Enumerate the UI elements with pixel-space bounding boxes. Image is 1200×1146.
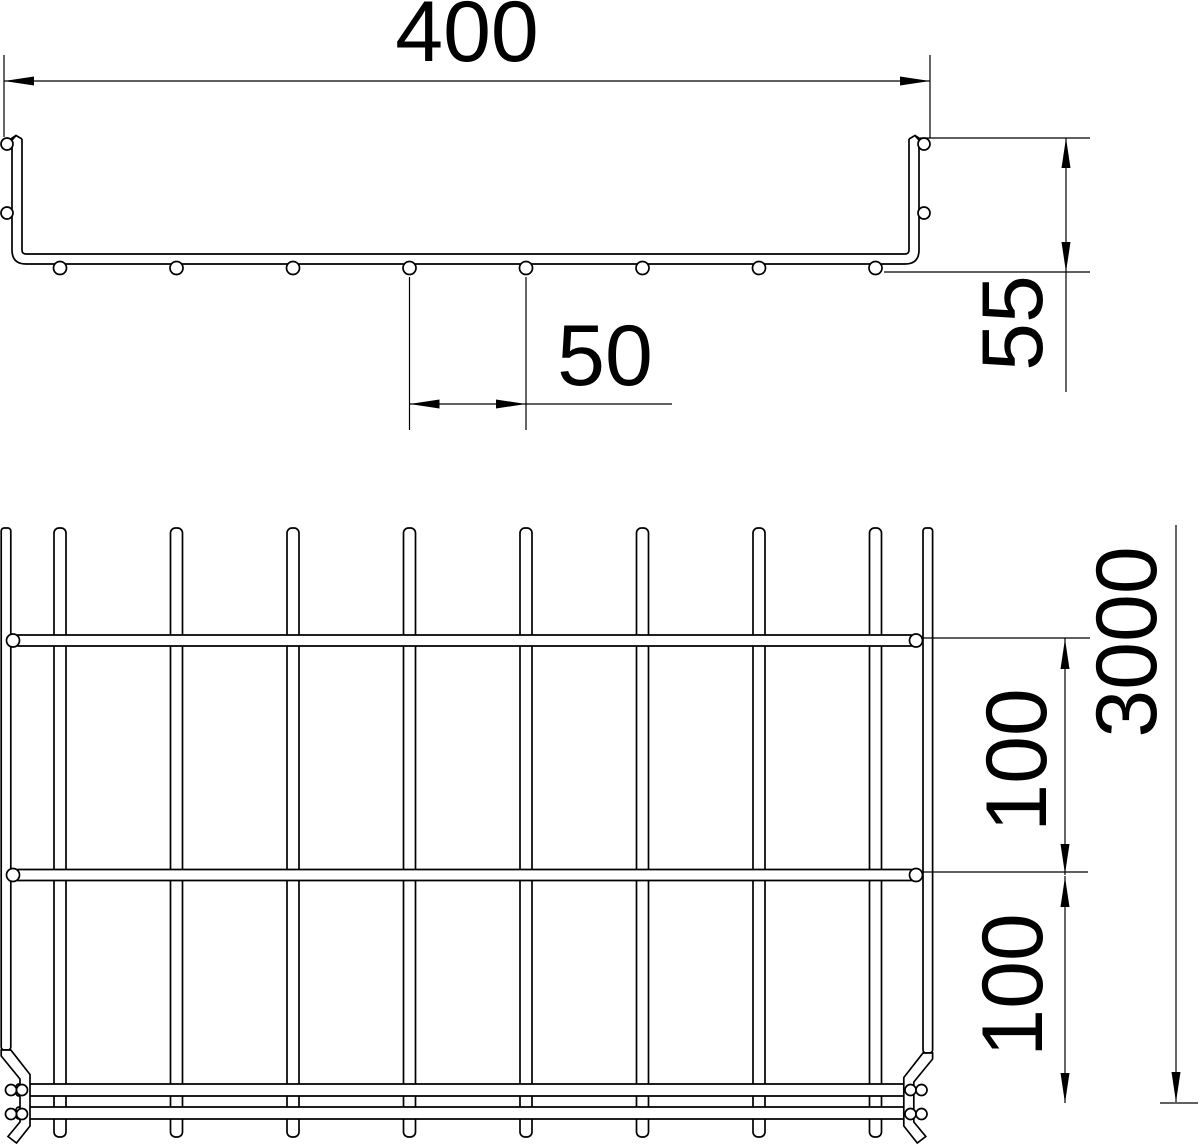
arrowhead-down (1172, 1072, 1181, 1102)
bottom-wire-circle (520, 262, 533, 275)
side-wire-circle (1, 138, 13, 150)
dim-length-3000: 3000 (1079, 525, 1198, 1103)
end-hook-right (904, 1053, 933, 1143)
arrowhead-up (1061, 639, 1070, 669)
plan-view: 100 100 3000 (1, 525, 1198, 1143)
mesh-longitudinal-wires (54, 528, 882, 1137)
dim-label-pitch-upper: 100 (969, 688, 1065, 832)
dim-label-height: 55 (965, 275, 1061, 371)
technical-drawing-canvas: 400 55 50 (0, 0, 1200, 1146)
dim-pitch-100-lower: 100 (965, 876, 1070, 1103)
end-rung-weld-circle (916, 1109, 927, 1120)
dim-height-55: 55 (884, 138, 1090, 392)
bottom-wire-circle (54, 262, 67, 275)
rung-end-circle (7, 869, 20, 882)
rung-end-a (16, 1084, 908, 1096)
edge-wire-right (923, 528, 933, 1053)
bottom-wire-circle (170, 262, 183, 275)
dim-spacing-50: 50 (410, 277, 673, 430)
bottom-wire-circle (636, 262, 649, 275)
longitudinal-wire (287, 528, 299, 1137)
arrowhead-down (1061, 844, 1070, 874)
longitudinal-wire (870, 528, 882, 1137)
longitudinal-wire (520, 528, 532, 1137)
dim-label-width: 400 (395, 0, 539, 80)
end-rung-weld-circle (916, 1085, 927, 1096)
longitudinal-wire (404, 528, 416, 1137)
longitudinal-wire (171, 528, 183, 1137)
rung-end-circle (910, 869, 923, 882)
end-rung-weld-circle (6, 1085, 17, 1096)
rung-2 (13, 870, 916, 881)
end-hook-left (1, 1050, 30, 1143)
side-wire-circle (1, 207, 13, 219)
longitudinal-wire (54, 528, 66, 1137)
end-rung-weld-circle (17, 1109, 28, 1120)
side-wire-circle (918, 138, 930, 150)
longitudinal-wire (753, 528, 765, 1137)
arrowhead-right (496, 400, 526, 409)
end-rung-weld-circle (905, 1109, 916, 1120)
profile-outer-contour (12, 140, 919, 264)
edge-wire-left (1, 528, 11, 1050)
longitudinal-wire (637, 528, 649, 1137)
mesh-edge-wires (1, 528, 932, 1053)
side-wire-circles (1, 138, 930, 219)
dim-label-length: 3000 (1079, 546, 1175, 737)
dim-width-400: 400 (4, 0, 930, 138)
profile-inner-contour (22, 139, 909, 254)
dim-label-spacing: 50 (557, 308, 653, 404)
arrowhead-right (900, 77, 930, 86)
arrowhead-left (4, 77, 34, 86)
bottom-wire-circle (753, 262, 766, 275)
side-wire-circle (918, 207, 930, 219)
end-rung-weld-circle (17, 1085, 28, 1096)
arrowhead-up (1061, 877, 1070, 907)
rung-end-circle (910, 634, 923, 647)
arrowhead-left (410, 400, 440, 409)
arrowhead-down (1062, 242, 1071, 272)
dim-label-pitch-lower: 100 (965, 913, 1061, 1057)
arrowhead-up (1062, 138, 1071, 168)
end-rung-weld-circle (6, 1109, 17, 1120)
rung-end-circle (7, 634, 20, 647)
bottom-wire-circle (869, 262, 882, 275)
tray-profile (4, 136, 927, 265)
dim-pitch-100-upper: 100 (921, 638, 1090, 875)
bottom-wire-circle (403, 262, 416, 275)
rung-end-b (16, 1107, 908, 1119)
bottom-wire-circle (287, 262, 300, 275)
end-rung-weld-circle (905, 1085, 916, 1096)
arrowhead-down (1061, 1073, 1070, 1103)
rung-1 (13, 635, 916, 646)
mesh-rungs (13, 635, 916, 1119)
cross-section-view: 400 55 50 (1, 0, 1090, 430)
